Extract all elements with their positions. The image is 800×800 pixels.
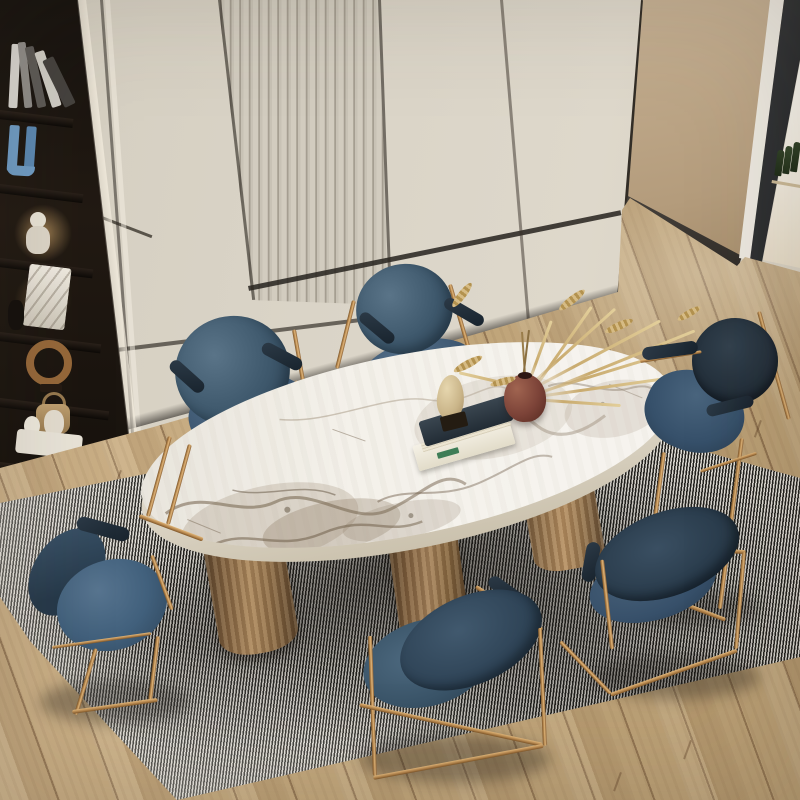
white-bust-body: [26, 226, 50, 254]
u-base: [6, 165, 35, 177]
bronze-ring-base: [40, 384, 62, 392]
blue-u-bookend: [6, 125, 44, 179]
dark-mini-vase: [8, 300, 24, 330]
bronze-ring-sculpture: [26, 340, 72, 386]
chair-shadow: [40, 680, 190, 724]
marble-box-veins: [22, 264, 71, 331]
dining-room-photo: [0, 0, 800, 800]
shelf-board: [0, 184, 83, 203]
vase-mouth: [518, 372, 532, 379]
